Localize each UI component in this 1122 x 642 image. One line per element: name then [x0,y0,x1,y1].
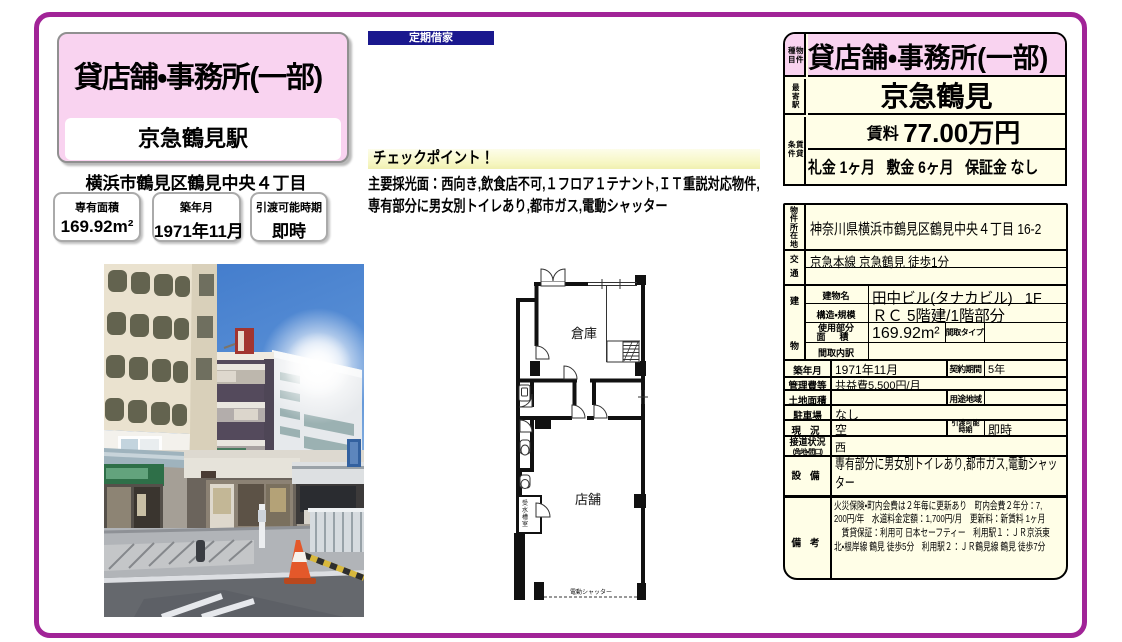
svg-text:受: 受 [522,499,528,507]
svg-text:水: 水 [522,506,528,514]
svg-text:電動シャッター: 電動シャッター [570,588,612,596]
svg-text:倉庫: 倉庫 [571,326,597,341]
svg-text:店舗: 店舗 [575,492,601,507]
svg-text:槽: 槽 [522,513,528,521]
svg-text:室: 室 [522,520,528,528]
